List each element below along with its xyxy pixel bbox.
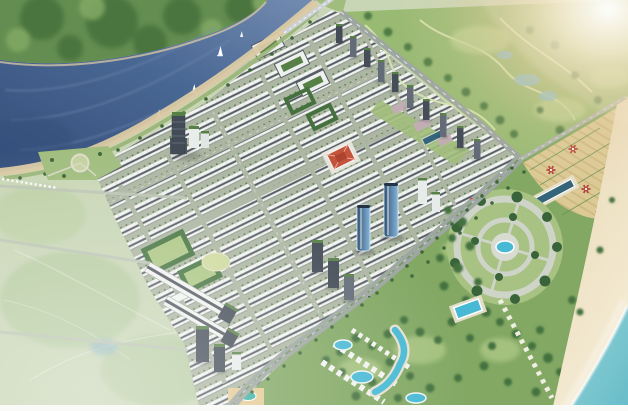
aerial-render-screenshot (0, 0, 628, 411)
masterplan-rendering (0, 0, 628, 411)
bottom-border (0, 405, 628, 411)
sun-flare (340, 0, 628, 235)
